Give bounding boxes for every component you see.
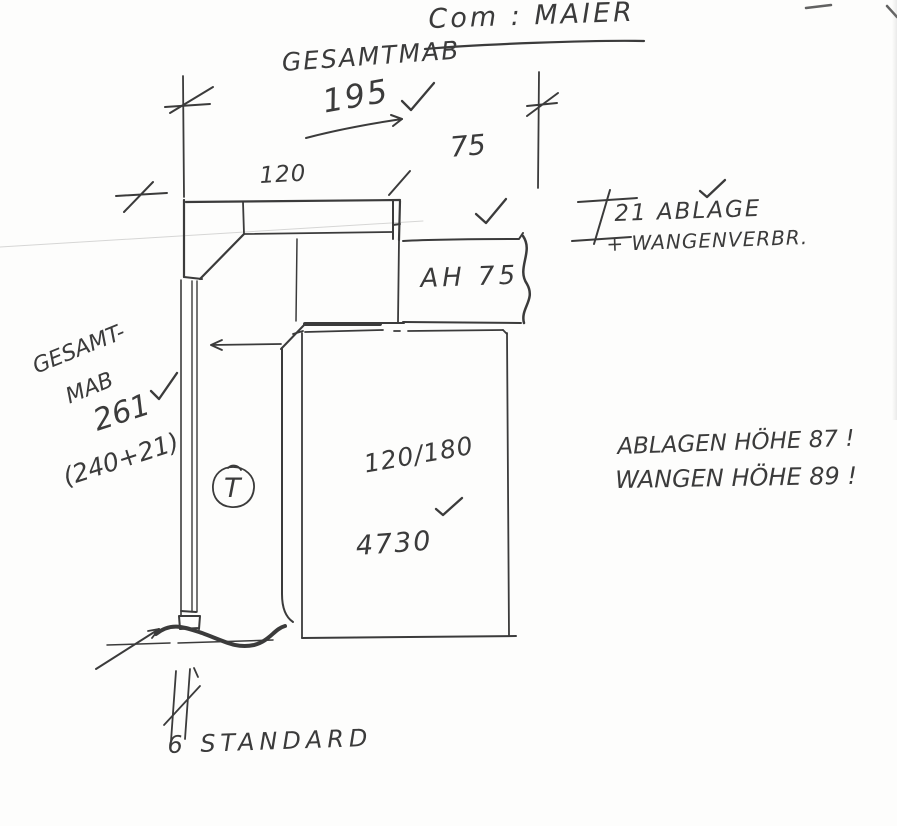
desk-model-number: 4730 <box>355 528 433 560</box>
base-note: 6 STANDARD <box>167 726 373 757</box>
shelf-note-line1: 21 ABLAGE <box>614 198 762 226</box>
floor-wave-line <box>156 626 285 646</box>
shelf-note-line2: + WANGENVERBR. <box>606 227 808 254</box>
checkmark-ablage <box>700 180 725 197</box>
checkmark-195 <box>402 83 434 110</box>
checkmark-261 <box>151 373 177 399</box>
width-120-label: 120 <box>259 163 307 188</box>
shelf-ah75-label: AH 75 <box>420 263 520 292</box>
checkmark-desk-size <box>436 498 462 515</box>
width-75-label: 75 <box>449 131 487 162</box>
customer-title: Com : MAIER <box>428 0 635 33</box>
circle-mark-letter: T <box>224 473 243 504</box>
scanned-sketch-page: T Com : MAIER GESAMTMAB 195 75 120 21 AB… <box>0 0 897 826</box>
break-line <box>523 236 530 323</box>
shelf-top-edge <box>403 233 523 241</box>
left-arrow <box>211 344 281 345</box>
scan-crease-line <box>0 221 423 247</box>
stray-pen-marks <box>806 5 897 17</box>
checkmark-75 <box>476 199 506 223</box>
height-note-line2: WANGEN HÖHE 89 ! <box>615 464 857 492</box>
dim-195-arrow <box>306 115 402 138</box>
bottom-dimension <box>96 629 273 669</box>
desk-rectangle <box>293 330 516 638</box>
